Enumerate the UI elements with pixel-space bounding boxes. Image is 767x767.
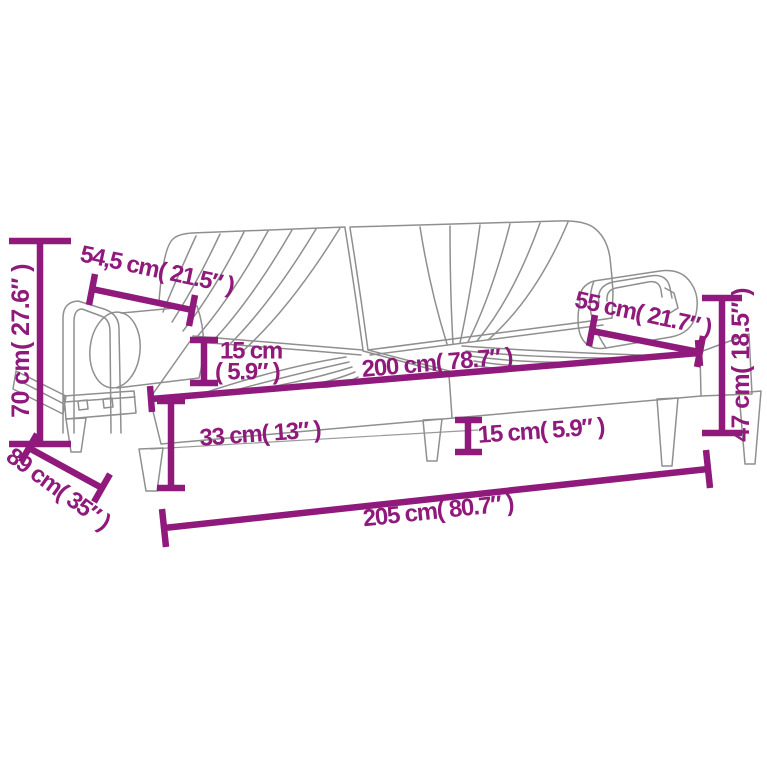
- dim-seat-height: 33 cm( 13″ ): [157, 401, 322, 488]
- dim-cushion-thickness: 15 cm ( 5.9″ ): [190, 338, 282, 386]
- dim-label-right-height: 47 cm( 18.5″ ): [727, 288, 755, 442]
- dim-label-seat-height: 33 cm( 13″ ): [199, 416, 322, 451]
- dim-label-leg-height: 15 cm( 5.9″ ): [477, 413, 605, 449]
- dim-total-width: 205 cm( 80.7″ ): [162, 450, 710, 547]
- bolster-left-cap: [86, 310, 144, 391]
- diagram-canvas: 70 cm( 27.6″ ) 54,5 cm( 21.5″ ) 15 cm ( …: [0, 0, 767, 767]
- dimension-annotations: 70 cm( 27.6″ ) 54,5 cm( 21.5″ ) 15 cm ( …: [1, 241, 755, 547]
- dim-label-total-height: 70 cm( 27.6″ ): [7, 264, 35, 418]
- backrest-channels-right: [420, 222, 568, 344]
- dim-line-cushion-thickness: [190, 340, 218, 383]
- dim-leg-height: 15 cm( 5.9″ ): [455, 413, 605, 452]
- dim-armrest-left: 54,5 cm( 21.5″ ): [78, 241, 237, 326]
- product-dimension-diagram: 70 cm( 27.6″ ) 54,5 cm( 21.5″ ) 15 cm ( …: [0, 0, 767, 767]
- dim-label-cushion-thickness-2: ( 5.9″ ): [215, 359, 280, 386]
- dim-right-height: 47 cm( 18.5″ ): [702, 288, 755, 442]
- dim-depth: 89 cm( 35″ ): [1, 434, 115, 536]
